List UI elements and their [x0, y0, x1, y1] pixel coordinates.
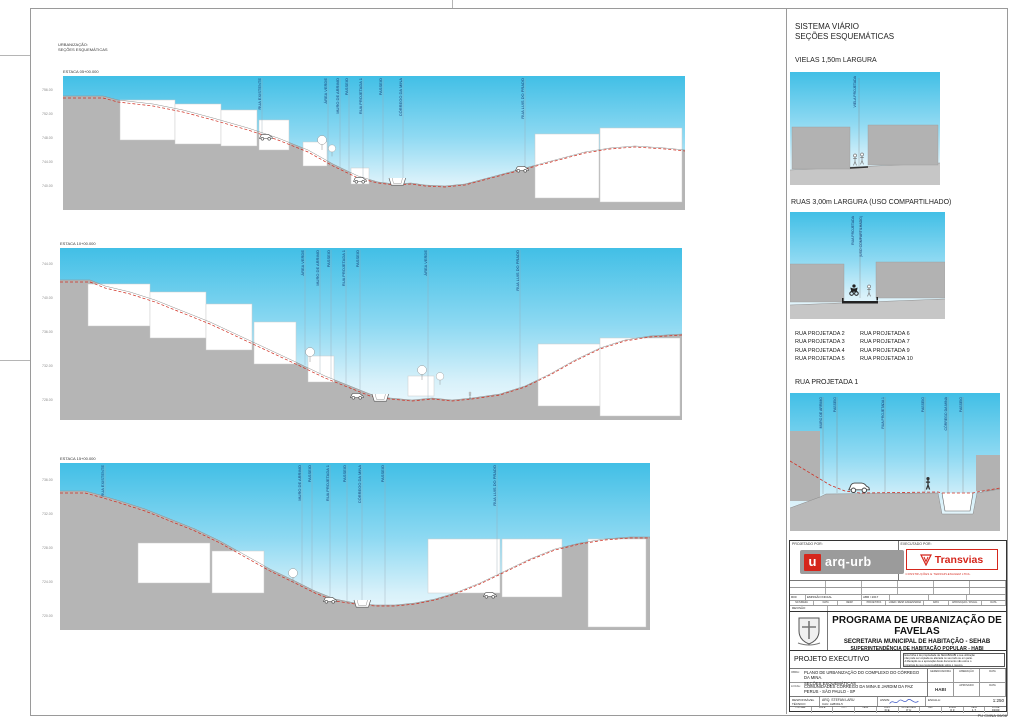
logos-row: PROJETADO POR: u arq-urb EXECUTADO POR: …	[790, 541, 1006, 581]
executado-por-label: EXECUTADO POR:	[901, 542, 932, 546]
section-label: RUA LUIS DO PRADO	[516, 250, 520, 291]
estaca-label-2: ESTACA 10+00.000	[60, 241, 96, 246]
rua-list-item: RUA PROJETADA 4	[795, 347, 845, 355]
elevation-tick: 736.00	[42, 478, 53, 482]
revision-desc: EMISSÃO INICIAL	[806, 595, 862, 600]
resp-cau: CAU: A28391-5	[822, 702, 877, 706]
cross-section-2: ÁREA VERDE MURO DE ARRIMO PASSEIO RUA PR…	[60, 248, 682, 420]
gerenciadora-header: GERENCIADORA	[928, 669, 954, 683]
obra-label: OBRA:	[791, 670, 800, 674]
projetado-por-label: PROJETADO POR:	[792, 542, 823, 546]
obra-local-rows: OBRA: PLANO DE URBANIZAÇÃO DO COMPLEXO D…	[790, 669, 1006, 697]
section-label: RUA EXISTENTE	[258, 78, 262, 110]
rua-list-item: RUA PROJETADA 5	[795, 355, 845, 363]
elevation-tick: 748.00	[42, 136, 53, 140]
rua-list-item: RUA PROJETADA 6	[860, 330, 913, 338]
section-label: ÁREA VERDE	[301, 250, 305, 276]
assinatura-cell: ASSIN:	[878, 697, 926, 706]
rua1-label: PASSEIO	[922, 397, 926, 412]
ruas-section-drawing: RUA PROJETADA (USO COMPARTILHADO)	[790, 212, 945, 319]
approval-mini-grid: GERENCIADORA LIBERAÇÃO DATA HABI APROVAD…	[928, 669, 1006, 696]
program-title: PROGRAMA DE URBANIZAÇÃO DE FAVELAS	[828, 615, 1006, 637]
rev-header: RESP.	[838, 601, 862, 605]
rua-list-item: RUA PROJETADA 3	[795, 338, 845, 346]
rua-list-col2: RUA PROJETADA 6 RUA PROJETADA 7 RUA PROJ…	[860, 330, 913, 363]
aprovado-header: APROVADO	[954, 683, 980, 697]
arq-urb-logo-text: arq-urb	[825, 555, 872, 569]
titleblock-divider-line	[786, 8, 787, 714]
section-label: PASSEIO	[381, 465, 385, 482]
rev-header: LIDER / RESP. ENGENHARIA	[886, 601, 924, 605]
rua-projetada-label: RUA PROJETADA	[852, 216, 856, 245]
rua-list-item: RUA PROJETADA 10	[860, 355, 913, 363]
elevation-tick: 728.00	[42, 398, 53, 402]
section-label: PASSEIO	[379, 78, 383, 95]
local-row: LOCAL: COMUNIDADES CÓRREGO DA MINA E JAR…	[790, 683, 927, 697]
local-label: LOCAL:	[791, 684, 801, 688]
disclaimer-text: Esta folha é de propriedade da SEHAB/HAB…	[903, 653, 1005, 667]
arq-urb-u-icon: u	[804, 554, 821, 571]
projeto-row: PROJETO EXECUTIVO Esta folha é de propri…	[790, 651, 1006, 669]
projetado-por-cell: PROJETADO POR: u arq-urb	[790, 541, 899, 580]
viela-projetada-label: VIELA PROJETADA	[854, 76, 858, 107]
section-label: MURO DE ARRIMO	[316, 250, 320, 286]
section-label: RUA EXISTENTE	[101, 465, 105, 497]
liberacao-header: LIBERAÇÃO	[954, 669, 980, 683]
elevation-tick: 720.00	[42, 614, 53, 618]
disclaimer-cell: Esta folha é de propriedade da SEHAB/HAB…	[900, 651, 1006, 668]
section-label: RUA PROJETADA 1	[359, 78, 363, 114]
section-label: MURO DE ARRIMO	[298, 465, 302, 501]
section-label: PASSEIO	[356, 250, 360, 267]
rua1-label: PASSEIO	[960, 397, 964, 412]
elevation-tick: 732.00	[42, 512, 53, 516]
section-label: RUA PROJETADA 1	[342, 250, 346, 286]
elevation-tick: 740.00	[42, 296, 53, 300]
elevation-tick: 752.00	[42, 112, 53, 116]
secretaria-title: SECRETARIA MUNICIPAL DE HABITAÇÃO - SEHA…	[828, 639, 1006, 645]
estaca-label-3: ESTACA 15+00.000	[60, 456, 96, 461]
data-header2: DATA	[980, 683, 1006, 697]
rua1-heading: RUA PROJETADA 1	[795, 379, 858, 386]
document-number: PU CMNA 06/08	[789, 713, 1007, 718]
transvias-logo: Transvias	[906, 549, 998, 570]
program-titles: PROGRAMA DE URBANIZAÇÃO DE FAVELAS SECRE…	[828, 612, 1006, 650]
resp-tecnico-label: RESPONSÁVEL TÉCNICO	[790, 697, 820, 706]
revision-date: ABR / 2017	[862, 595, 890, 600]
local-line2: PERUS - SÃO PAULO - SP	[804, 689, 925, 694]
cross-section-1-drawing	[63, 76, 685, 210]
section-label: ÁREA VERDE	[324, 78, 328, 104]
rua-list-item: RUA PROJETADA 2	[795, 330, 845, 338]
section-label: CÓRREGO DA MINA	[399, 78, 403, 116]
elevation-tick: 732.00	[42, 364, 53, 368]
arq-urb-logo: u arq-urb	[800, 550, 904, 574]
escala-cell: ESCALA: 1:250	[926, 697, 1006, 706]
elevation-tick: 744.00	[42, 262, 53, 266]
sao-paulo-coat-of-arms-icon	[796, 616, 822, 646]
section-label: CÓRREGO DA MINA	[358, 465, 362, 503]
vielas-section-drawing: VIELA PROJETADA	[790, 72, 940, 185]
ruas-heading: RUAS 3,00m LARGURA (USO COMPARTILHADO)	[791, 199, 951, 206]
elevation-tick: 724.00	[42, 580, 53, 584]
elevation-tick: 736.00	[42, 330, 53, 334]
section-label: MURO DE ARRIMO	[336, 78, 340, 114]
section-label: RUA PROJETADA 1	[326, 465, 330, 501]
rev-header: DATA	[982, 601, 1006, 605]
corner-label-line2: SEÇÕES ESQUEMÁTICAS	[58, 47, 108, 52]
responsavel-row: RESPONSÁVEL TÉCNICO ARQ. STEFAN LARU CAU…	[790, 697, 1006, 707]
rev-header: NATUREZA	[790, 601, 814, 605]
rua1-label: RUA PROJETADA 1	[882, 397, 886, 429]
registration-tick	[452, 0, 453, 8]
estaca-label-1: ESTACA 05+00.000	[63, 69, 99, 74]
rua-list-col1: RUA PROJETADA 2 RUA PROJETADA 3 RUA PROJ…	[795, 330, 845, 363]
empty-grid-row	[790, 588, 1006, 595]
escala-value: 1:250	[993, 698, 1004, 703]
rua1-label: PASSEIO	[834, 397, 838, 412]
title-block: PROJETADO POR: u arq-urb EXECUTADO POR: …	[789, 540, 1007, 712]
rev-header: PROJETISTA	[862, 601, 886, 605]
rua1-label: MURO DE ARRIMO	[820, 397, 824, 428]
escala-label: ESCALA:	[928, 698, 941, 702]
empty-grid-row	[790, 581, 1006, 588]
section-label: RUA LUIS DO PRADO	[493, 465, 497, 506]
resp-label-line2: TÉCNICO	[792, 702, 819, 706]
corner-label: URBANIZAÇÃO: SEÇÕES ESQUEMÁTICAS	[58, 42, 108, 52]
rev-header: APROVAÇÃO / FISCAL	[949, 601, 982, 605]
rua-list-item: RUA PROJETADA 7	[860, 338, 913, 346]
vielas-heading: VIELAS 1,50m LARGURA	[795, 57, 877, 64]
rua1-label: CÓRREGO DA MINA	[945, 397, 949, 430]
program-row: PROGRAMA DE URBANIZAÇÃO DE FAVELAS SECRE…	[790, 612, 1006, 651]
registration-tick	[0, 360, 30, 361]
seal-cell	[790, 612, 828, 650]
transvias-logo-text: Transvias	[935, 554, 983, 566]
section-label: RUA LUIS DO PRADO	[521, 78, 525, 119]
projeto-executivo-label: PROJETO EXECUTIVO	[790, 651, 900, 668]
revisao-label: REVISÃO	[790, 606, 828, 611]
drawing-sheet: URBANIZAÇÃO: SEÇÕES ESQUEMÁTICAS ESTACA …	[0, 0, 1024, 723]
sidebar-title: SISTEMA VIÁRIO SEÇÕES ESQUEMÁTICAS	[795, 22, 894, 43]
transvias-subtext: CONSTRUÇÕES E TERRAPLENAGEM LTDA.	[906, 572, 1006, 576]
cross-section-2-drawing	[60, 248, 682, 420]
section-label: PASSEIO	[308, 465, 312, 482]
transvias-shield-icon	[920, 554, 932, 566]
elevation-tick: 728.00	[42, 546, 53, 550]
registration-tick	[0, 55, 30, 56]
disclaimer-line: projetista de sua responsabilidade sobre…	[905, 664, 1003, 667]
cross-section-3: RUA EXISTENTE MURO DE ARRIMO PASSEIO RUA…	[60, 463, 650, 630]
obra-local-left: OBRA: PLANO DE URBANIZAÇÃO DO COMPLEXO D…	[790, 669, 928, 696]
rua1-section-drawing: MURO DE ARRIMO PASSEIO RUA PROJETADA 1 P…	[790, 393, 1000, 531]
cross-section-3-drawing	[60, 463, 650, 630]
revision-code: R00	[790, 595, 806, 600]
section-label: PASSEIO	[327, 250, 331, 267]
cross-section-1: RUA EXISTENTE ÁREA VERDE MURO DE ARRIMO …	[63, 76, 685, 210]
section-label: PASSEIO	[345, 78, 349, 95]
elevation-tick: 740.00	[42, 184, 53, 188]
obra-row: OBRA: PLANO DE URBANIZAÇÃO DO COMPLEXO D…	[790, 669, 927, 683]
data-header: DATA	[980, 669, 1006, 683]
elevation-tick: 756.00	[42, 88, 53, 92]
executado-por-cell: EXECUTADO POR: Transvias CONSTRUÇÕES E T…	[899, 541, 1007, 580]
obra-line1: PLANO DE URBANIZAÇÃO DO COMPLEXO DO CÓRR…	[804, 670, 925, 681]
sidebar-title-line2: SEÇÕES ESQUEMÁTICAS	[795, 32, 894, 42]
sidebar-title-line1: SISTEMA VIÁRIO	[795, 22, 894, 32]
rua-list-item: RUA PROJETADA 9	[860, 347, 913, 355]
signature	[884, 698, 924, 706]
section-label: PASSEIO	[343, 465, 347, 482]
rev-header: DATA	[814, 601, 838, 605]
resp-name-cell: ARQ. STEFAN LARU CAU: A28391-5	[820, 697, 878, 706]
elevation-tick: 744.00	[42, 160, 53, 164]
section-label: ÁREA VERDE	[424, 250, 428, 276]
habi-value: HABI	[928, 683, 954, 697]
uso-compartilhado-label: (USO COMPARTILHADO)	[860, 216, 864, 257]
rev-header: DATA	[924, 601, 948, 605]
